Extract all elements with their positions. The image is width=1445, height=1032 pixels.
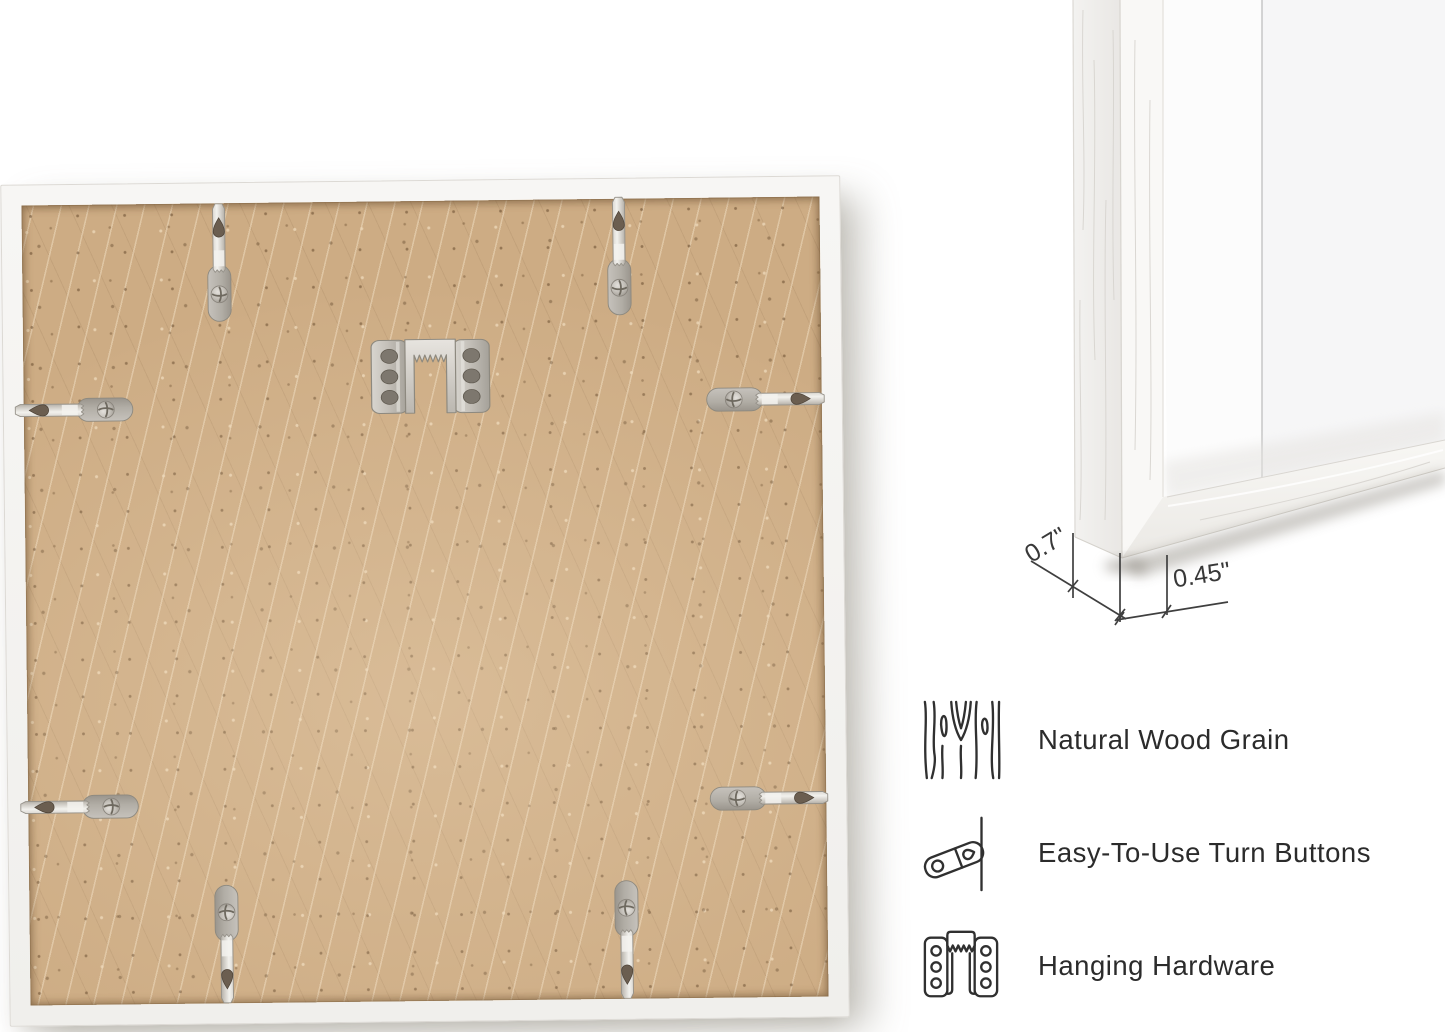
mdf-backing-board (21, 196, 828, 1005)
turn-button-left-bottom (20, 791, 140, 822)
mat-board (1163, 0, 1262, 497)
turn-button-top-left (203, 203, 234, 323)
feature-row-hanging-hardware: Hanging Hardware (920, 925, 1440, 1007)
feature-list: Natural Wood Grain Easy-To-Use Turn Butt… (920, 699, 1440, 1007)
depth-dimension-label: 0.7" (1020, 522, 1072, 568)
feature-row-wood-grain: Natural Wood Grain (920, 699, 1440, 781)
turn-button-top-right (603, 197, 634, 317)
turn-button-bottom-right (611, 879, 642, 999)
artwork-area (1262, 0, 1445, 477)
face-width-dimension-label: 0.45" (1171, 557, 1232, 594)
hanging-hardware-icon (920, 925, 1002, 1007)
turn-button-right-bottom (708, 782, 828, 813)
feature-row-turn-buttons: Easy-To-Use Turn Buttons (920, 812, 1440, 894)
turn-button-left-top (15, 394, 135, 425)
feature-label: Easy-To-Use Turn Buttons (1038, 837, 1371, 869)
product-image: 0.7" 0.45" Natural Wood Grain (0, 0, 1445, 1032)
feature-label: Natural Wood Grain (1038, 724, 1290, 756)
feature-label: Hanging Hardware (1038, 950, 1275, 982)
turn-button-icon (920, 812, 1002, 894)
wood-grain-icon (920, 699, 1002, 781)
dimension-annotation: 0.7" 0.45" (1020, 430, 1280, 660)
turn-button-bottom-left (211, 883, 242, 1003)
frame-back-photo (0, 175, 849, 1026)
sawtooth-hanger (370, 336, 491, 415)
turn-button-right-top (705, 383, 825, 414)
